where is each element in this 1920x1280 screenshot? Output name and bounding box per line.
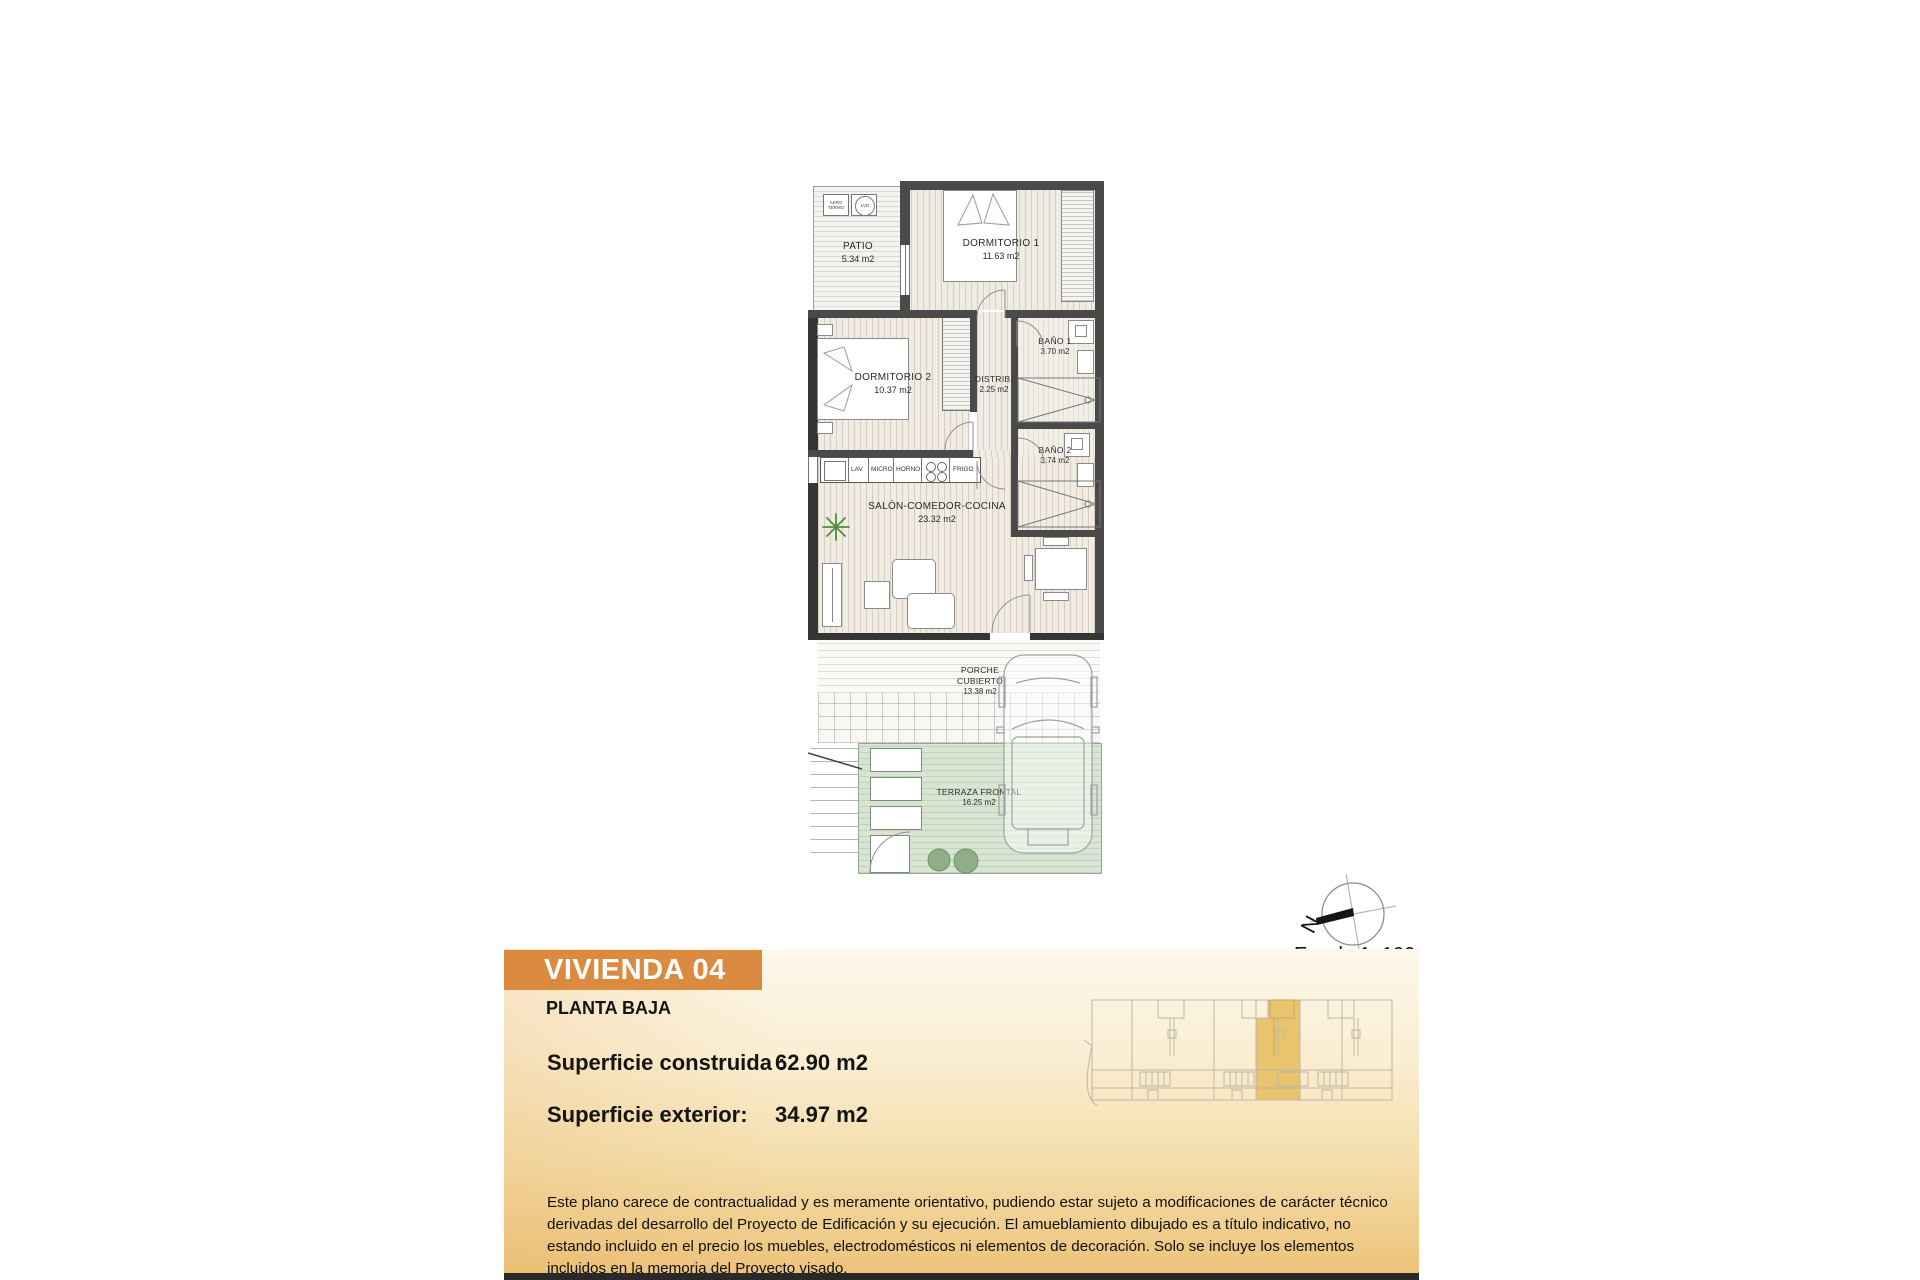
kitchen-label-micro: MICRO	[871, 466, 893, 473]
room-label-bano2: BAÑO 2 3.74 m2	[1015, 445, 1095, 465]
hall-patch	[973, 450, 1011, 457]
room-label-bano1: BAÑO 1 3.70 m2	[1015, 336, 1095, 356]
wall	[1011, 422, 1104, 429]
wall	[1030, 633, 1104, 640]
kitchen-sink	[824, 461, 846, 481]
kitchen-label-lav: LAV	[851, 466, 863, 473]
dining-chair	[1024, 555, 1033, 581]
panel-bottom-bar	[504, 1273, 1419, 1280]
unit-title: VIVIENDA 04	[504, 950, 762, 990]
wall	[1011, 312, 1018, 422]
nightstand	[817, 324, 833, 336]
wall	[970, 312, 977, 412]
room-label-dormitorio2: DORMITORIO 2 10.37 m2	[813, 372, 973, 395]
wall	[1095, 181, 1104, 640]
nightstand	[817, 422, 833, 434]
wall	[1011, 530, 1104, 537]
room-label-distrib: DISTRIB. 2.25 m2	[971, 374, 1017, 394]
wall	[900, 190, 910, 245]
room-label-dormitorio1: DORMITORIO 1 11.63 m2	[931, 238, 1071, 261]
room-label-patio: PATIO 5.34 m2	[813, 241, 903, 264]
room-label-salon: SALÓN-COMEDOR-COCINA 23.32 m2	[847, 501, 1027, 524]
floor-label: PLANTA BAJA	[546, 998, 671, 1019]
unit-title-banner: VIVIENDA 04	[504, 950, 762, 990]
toilet	[1077, 463, 1094, 487]
sofa	[907, 593, 955, 629]
window	[808, 455, 818, 483]
built-area-label: Superficie construida :	[547, 1050, 785, 1076]
bed	[943, 190, 1017, 282]
built-area-value: 62.90 m2	[775, 1050, 868, 1076]
wall	[900, 181, 1104, 190]
planter	[870, 748, 922, 772]
plan-sheet: { "plan": { "rooms": [ {"name": "PATIO",…	[0, 0, 1920, 1280]
wall	[808, 450, 973, 457]
wall	[808, 483, 818, 640]
tv-unit	[822, 563, 842, 627]
terrace-gate	[870, 835, 910, 873]
site-plan	[1082, 986, 1402, 1116]
wall	[1005, 310, 1104, 318]
wall	[808, 310, 977, 318]
dining-chair	[1043, 537, 1069, 546]
porch-pergola	[818, 693, 1100, 743]
exterior-area-value: 34.97 m2	[775, 1102, 868, 1128]
disclaimer-text: Este plano carece de contractualidad y e…	[547, 1192, 1395, 1280]
dining-chair	[1043, 592, 1069, 601]
kitchen-label-frigo: FRIGO	[953, 466, 974, 473]
kitchen-label-horno: HORNO	[896, 466, 920, 473]
kitchen-counter: LAV MICRO HORNO FRIGO	[820, 457, 981, 483]
exterior-stairs	[810, 747, 858, 853]
wall	[808, 633, 990, 640]
coffee-table	[864, 581, 890, 609]
planter	[870, 806, 922, 830]
wall	[900, 295, 910, 310]
washer-label: LVD	[855, 196, 875, 216]
exterior-area-label: Superficie exterior:	[547, 1102, 748, 1128]
room-label-porche: PORCHE CUBIERTO 13.38 m2	[949, 665, 1011, 696]
aerotermo-unit: AERO TERMO	[823, 194, 849, 216]
washer-unit: LVD	[851, 194, 877, 216]
dining-table	[1035, 548, 1087, 590]
room-label-terraza: TERRAZA FRONTAL 16.25 m2	[899, 787, 1059, 807]
aerotermo-label: AERO TERMO	[824, 195, 848, 211]
floor-plan: AERO TERMO LVD LAV MICRO HORNO FRIGO	[806, 181, 1104, 877]
closet	[942, 312, 972, 411]
